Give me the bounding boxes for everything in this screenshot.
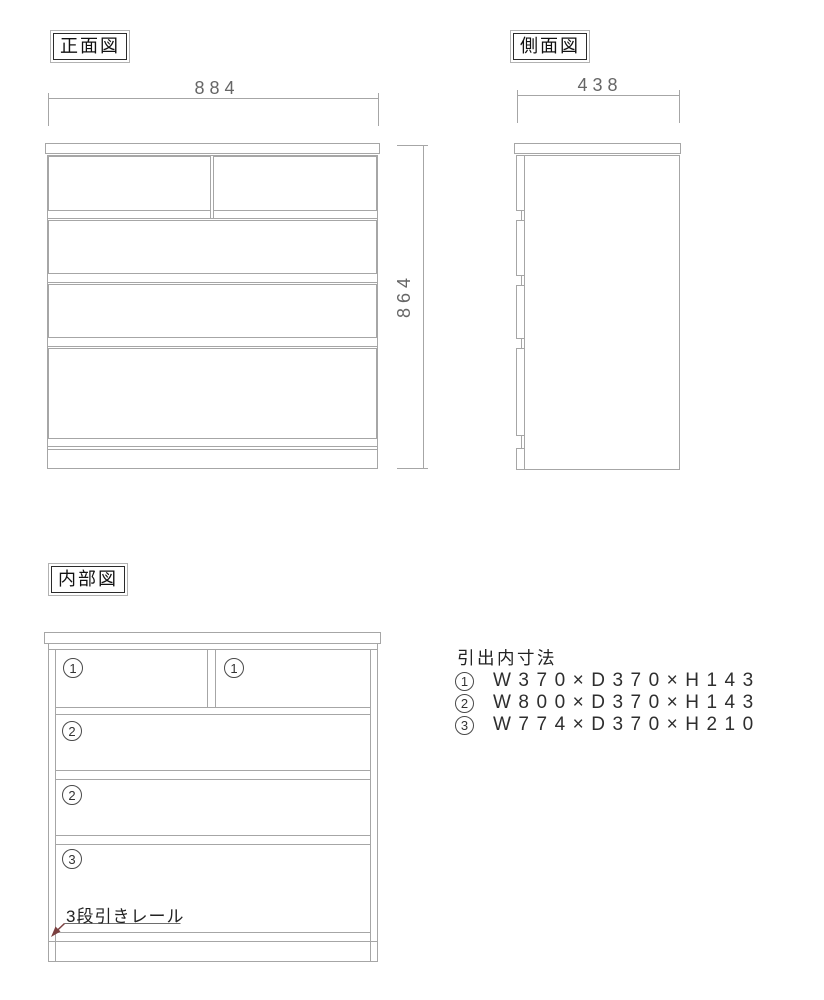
- front-view-drawing: 884: [46, 78, 429, 469]
- front-width-dimension: 884: [49, 78, 379, 126]
- internal-top-panel: [45, 633, 381, 644]
- spec-dims-1: W370×D370×H143: [493, 670, 761, 692]
- side-drawer-face-2: [517, 221, 525, 276]
- front-drawer-row1-left: [49, 157, 211, 211]
- spec-dims-2: W800×D370×H143: [493, 692, 761, 714]
- rail-note-text: 3段引きレール: [66, 902, 184, 927]
- compartment-num-row2: 2: [62, 721, 82, 741]
- front-view-label: 正面図: [50, 30, 130, 63]
- spec-dims-3: W774×D370×H210: [493, 714, 761, 736]
- front-view-label-text: 正面図: [53, 33, 127, 60]
- spec-row-1: 1 W370×D370×H143: [455, 671, 761, 691]
- compartment-num-row4: 3: [62, 849, 82, 869]
- drawing-linework: 884: [0, 0, 824, 1000]
- side-drawer-face-4: [517, 349, 525, 436]
- front-top-panel: [46, 144, 380, 154]
- side-view-label: 側面図: [510, 30, 590, 63]
- front-drawer-row4: [49, 349, 377, 439]
- compartment-num-row1-right: 1: [224, 658, 244, 678]
- compartment-num-row3: 2: [62, 785, 82, 805]
- spec-title: 引出内寸法: [457, 645, 557, 670]
- side-drawer-face-1: [517, 156, 525, 211]
- front-height-dim-text: 864: [394, 273, 414, 318]
- front-height-dimension: 864: [394, 145, 428, 469]
- spec-row-3: 3 W774×D370×H210: [455, 715, 761, 735]
- spec-num-1: 1: [455, 672, 474, 691]
- internal-view-label: 内部図: [48, 563, 128, 596]
- front-drawer-row2: [49, 221, 377, 274]
- side-top-panel: [515, 144, 681, 154]
- front-body-outline: [48, 156, 378, 469]
- front-width-dim-text: 884: [194, 78, 239, 98]
- internal-view-label-text: 内部図: [51, 566, 125, 593]
- side-drawer-face-5: [517, 449, 525, 470]
- front-drawer-row3: [49, 285, 377, 338]
- compartment-num-row1-left: 1: [63, 658, 83, 678]
- side-view-drawing: 438: [515, 75, 681, 470]
- side-drawer-face-3: [517, 286, 525, 339]
- spec-row-2: 2 W800×D370×H143: [455, 693, 761, 713]
- spec-num-3: 3: [455, 716, 474, 735]
- side-body-outline: [522, 156, 680, 470]
- technical-drawing-page: 884: [0, 0, 824, 1000]
- side-view-label-text: 側面図: [513, 33, 587, 60]
- side-depth-dim-text: 438: [577, 75, 622, 95]
- side-depth-dimension: 438: [518, 75, 680, 123]
- spec-num-2: 2: [455, 694, 474, 713]
- front-drawer-row1-right: [214, 157, 377, 211]
